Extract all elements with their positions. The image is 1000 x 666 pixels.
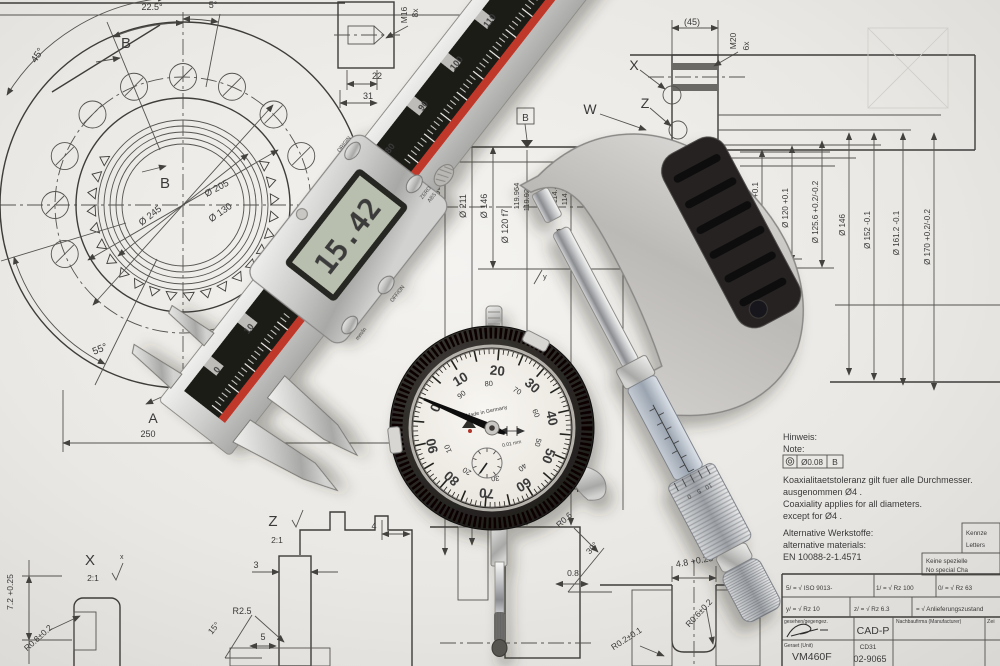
- surface-mark-cell: = √ Anlieferungszustand: [916, 606, 984, 613]
- tb-label: gesehen/gegengez.: [784, 619, 828, 625]
- scene-svg: Ø 110.8 +0.1Ø 120 +0.1Ø 125.6 +0.2/-0.2Ø…: [0, 0, 1000, 666]
- scale-label: 2:1: [271, 535, 283, 545]
- detail-label: X: [85, 552, 95, 569]
- dial-number-black: 70: [478, 485, 494, 501]
- photo-measuring-tools-on-drawing: Ø 110.8 +0.1Ø 120 +0.1Ø 125.6 +0.2/-0.2Ø…: [0, 0, 1000, 666]
- dim-label: 3: [253, 560, 258, 570]
- datum-label: A: [148, 410, 158, 426]
- dim-label: 31: [363, 91, 373, 101]
- detail-label: Z: [268, 513, 277, 530]
- dim-label: 22: [372, 71, 382, 81]
- needle-cap-center: [489, 425, 495, 431]
- note-line: alternative materials:: [783, 540, 866, 550]
- dia-label: Ø 211: [458, 194, 468, 218]
- tb-label: Nachbaufirma (Manufacturer): [896, 619, 962, 625]
- surface-mark-cell: z/ = √ Rz 6.3: [854, 606, 890, 613]
- note-line: except for Ø4 .: [783, 511, 842, 521]
- radius-label: R2.5: [232, 606, 251, 616]
- dial-number-red: 80: [484, 379, 493, 389]
- probe-tip: [492, 640, 507, 657]
- dim-label: 22.5°: [141, 2, 163, 12]
- surface-mark-cell: 5/ = √ ISO 9013-: [786, 585, 832, 592]
- box-label: Keine spezielle: [926, 558, 968, 565]
- box-label: No special Cha: [926, 567, 969, 574]
- note-line: Hinweis:: [783, 432, 817, 442]
- dial-plunger: [495, 562, 504, 616]
- box-label: Letters: [966, 542, 985, 549]
- dia-label: Ø 170 +0.2/-0.2: [923, 209, 932, 265]
- detail-label: X: [629, 57, 639, 73]
- dim-label: 4: [371, 521, 376, 531]
- dia-label: Ø 120 +0.1: [781, 188, 790, 228]
- datum-label: B: [160, 175, 170, 192]
- note-line: EN 10088-2-1.4571: [783, 552, 862, 562]
- surface-mark: y: [543, 272, 547, 281]
- dim-label: 5°: [209, 0, 218, 10]
- dia-label: Ø 125.6 +0.2/-0.2: [811, 180, 820, 243]
- note-line: Note:: [783, 444, 805, 454]
- probe-knurl: [494, 612, 505, 642]
- dia-label: Ø 146: [479, 194, 489, 219]
- dim-label: 250: [140, 429, 155, 439]
- scale-label: 2:1: [87, 573, 99, 583]
- tol-label: 119.964: [512, 183, 521, 210]
- maker-logo-dot: [468, 429, 472, 433]
- thread-label: M20: [728, 32, 738, 49]
- fcf-datum: B: [832, 457, 838, 467]
- tb-cad: CAD-P: [857, 625, 890, 637]
- fcf-tolerance: Ø0.08: [801, 458, 823, 467]
- note-line: Alternative Werkstoffe:: [783, 528, 873, 538]
- tb-label: Geraet (Unit): [784, 643, 813, 649]
- datum-box-label: B: [522, 113, 529, 124]
- dim-label: 0.8: [567, 568, 579, 578]
- tb-code: 02-9065: [853, 654, 886, 664]
- box-label: Kennze: [966, 530, 988, 537]
- note-line: ausgenommen Ø4 .: [783, 487, 862, 497]
- count-label: 6x: [741, 41, 751, 51]
- surface-mark-cell: y/ = √ Rz 10: [786, 606, 820, 613]
- count-label: 8x: [410, 8, 420, 18]
- limit-marker[interactable]: [387, 426, 402, 453]
- detail-label: W: [583, 101, 597, 117]
- note-line: Koaxialitaetstoleranz gilt fuer alle Dur…: [783, 475, 973, 485]
- thread-label: M16: [399, 6, 409, 23]
- dial-number-black: 20: [489, 363, 505, 379]
- dia-label: Ø 146: [838, 214, 847, 236]
- dim-label: 7.2 +0.25: [5, 574, 15, 610]
- dim-label: 5: [260, 632, 265, 642]
- surface-mark-cell: 1/ = √ Rz 100: [876, 585, 914, 592]
- datum-label: B: [121, 35, 131, 52]
- dim-label: (45): [684, 17, 700, 27]
- detail-label: Z: [641, 95, 650, 111]
- tb-unit: VM460F: [792, 651, 832, 663]
- surface-mark-cell: 0/ = √ Rz 63: [938, 585, 973, 592]
- tb-code: CD31: [860, 644, 877, 651]
- dia-label: Ø 161.2 -0.1: [892, 210, 901, 255]
- surface-mark: x: [120, 554, 124, 561]
- tb-label: Zei: [987, 619, 995, 625]
- dia-label: Ø 152 -0.1: [863, 211, 872, 249]
- dia-label: Ø 120 f7: [500, 209, 510, 244]
- note-line: Coaxiality applies for all diameters.: [783, 499, 922, 509]
